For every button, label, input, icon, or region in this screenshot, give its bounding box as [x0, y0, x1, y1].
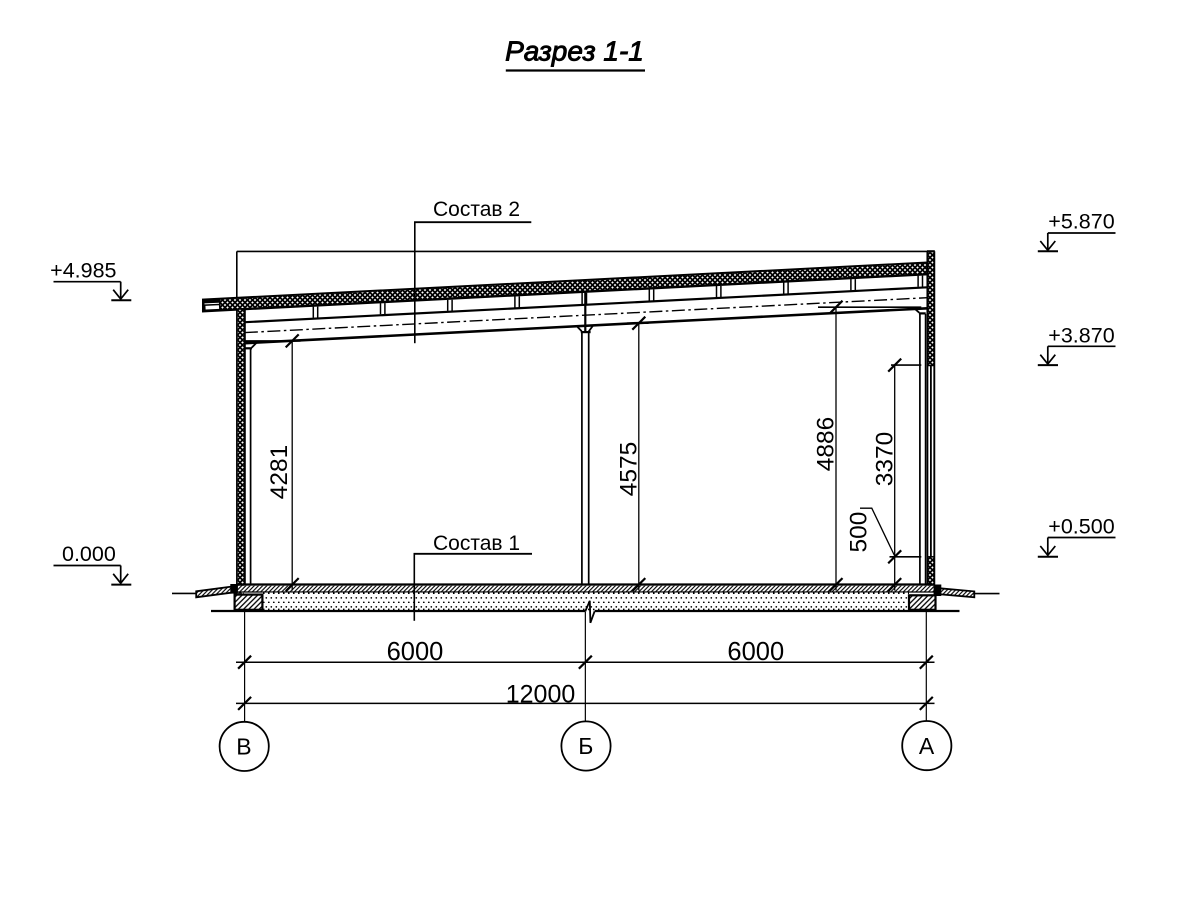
svg-text:0.000: 0.000: [62, 542, 116, 566]
svg-text:Состав 1: Состав 1: [433, 532, 520, 555]
svg-text:4575: 4575: [615, 442, 642, 497]
svg-text:+3.870: +3.870: [1048, 323, 1114, 347]
svg-text:+0.500: +0.500: [1048, 514, 1114, 538]
svg-text:4886: 4886: [813, 417, 840, 472]
svg-text:6000: 6000: [727, 638, 784, 666]
svg-text:+5.870: +5.870: [1048, 209, 1114, 233]
svg-text:Состав 2: Состав 2: [433, 198, 520, 221]
svg-text:Б: Б: [578, 733, 593, 759]
svg-text:3370: 3370: [872, 432, 899, 487]
svg-text:4281: 4281: [266, 445, 293, 500]
svg-text:6000: 6000: [387, 638, 444, 666]
svg-text:В: В: [236, 734, 251, 760]
svg-text:500: 500: [845, 512, 872, 553]
svg-text:12000: 12000: [506, 681, 576, 709]
svg-text:А: А: [919, 733, 935, 759]
svg-text:Разрез 1-1: Разрез 1-1: [505, 36, 644, 67]
svg-text:+4.985: +4.985: [50, 258, 116, 282]
